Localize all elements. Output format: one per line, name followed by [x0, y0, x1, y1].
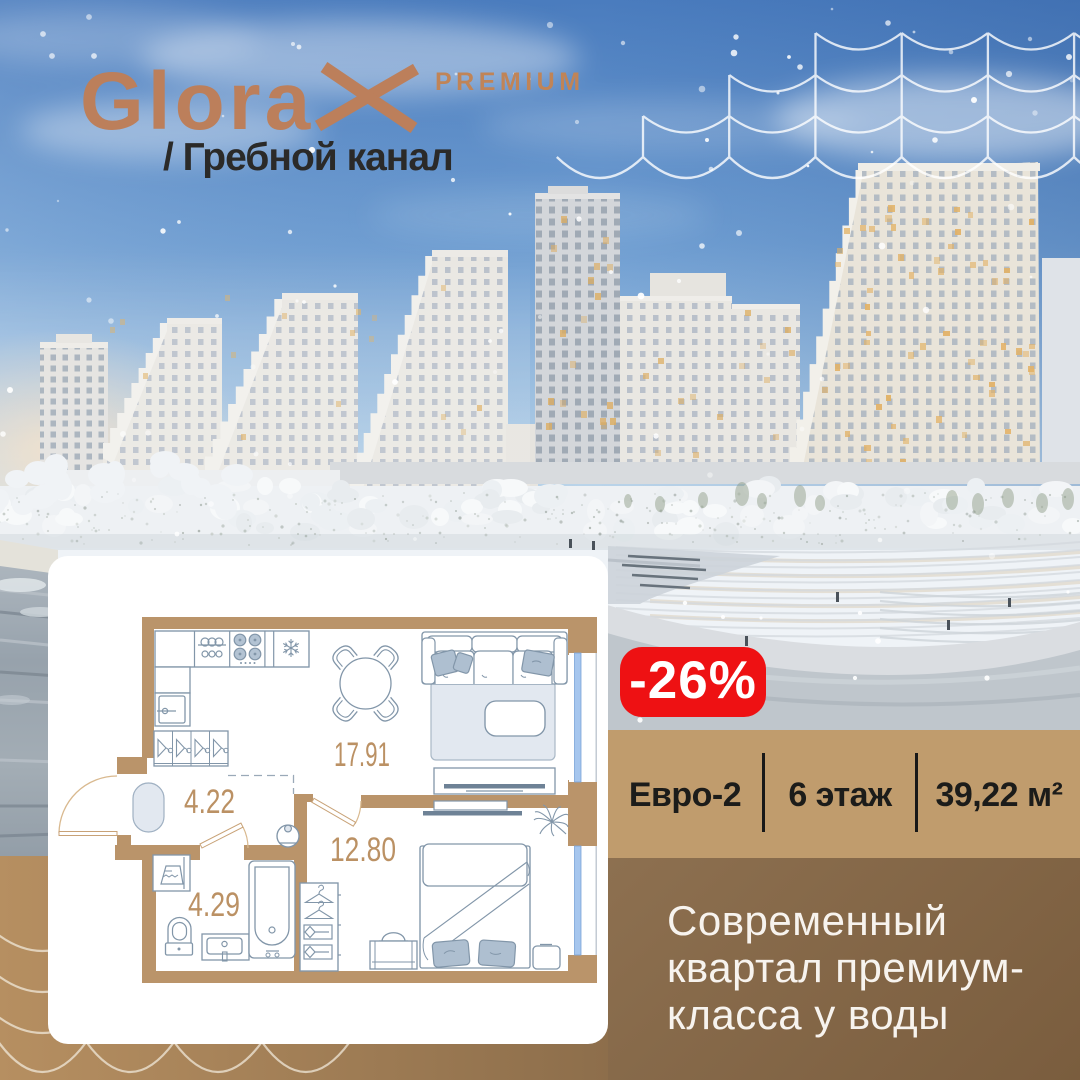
svg-text:17.91: 17.91 [334, 736, 390, 774]
svg-text:4.29: 4.29 [188, 886, 240, 924]
svg-text:12.80: 12.80 [330, 831, 396, 869]
svg-text:4.22: 4.22 [184, 783, 235, 821]
